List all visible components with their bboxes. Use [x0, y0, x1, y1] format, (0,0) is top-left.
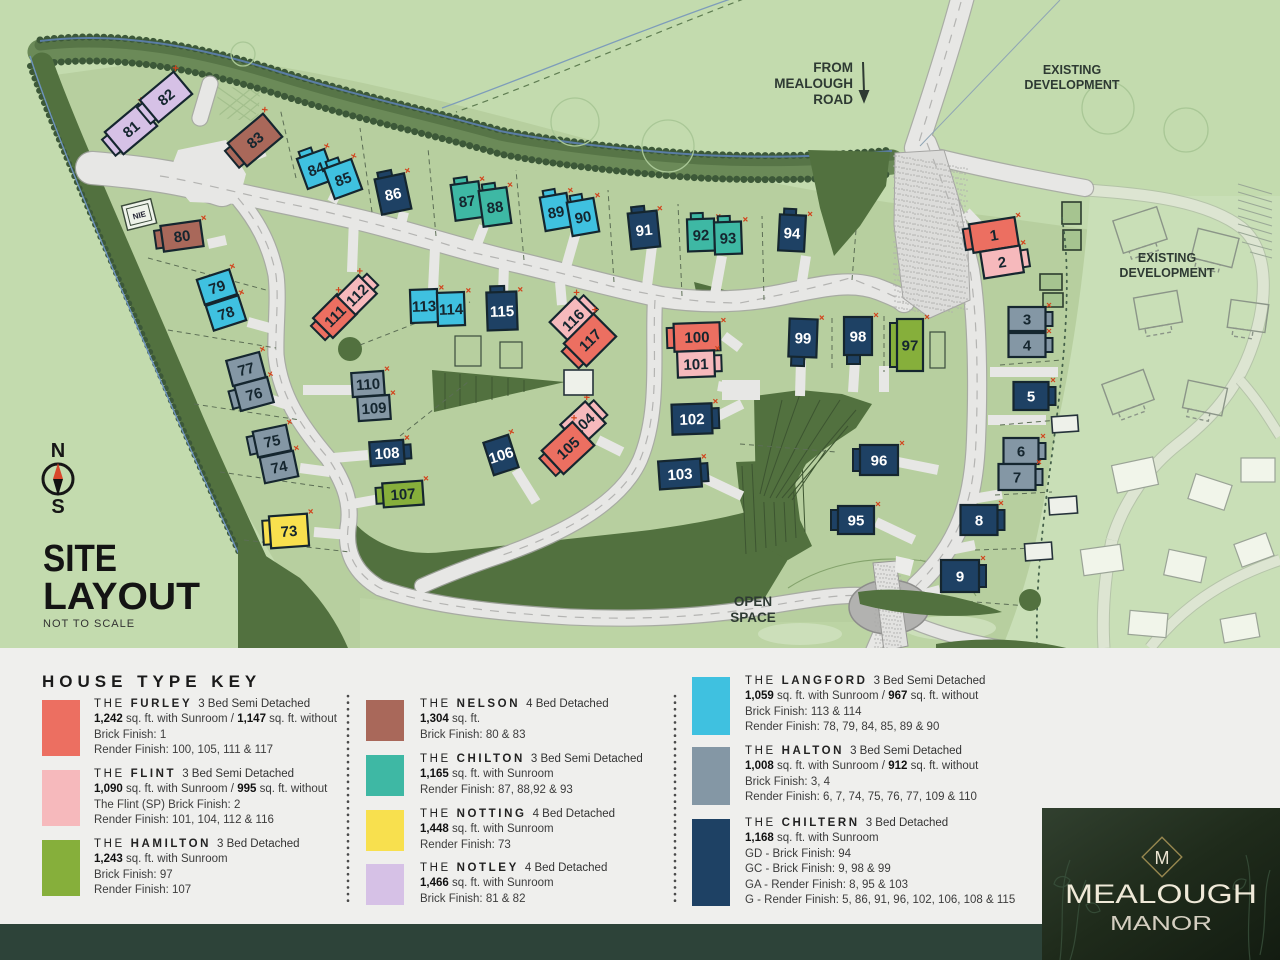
svg-text:The Flint (SP) Brick Finish: 2: The Flint (SP) Brick Finish: 2: [94, 799, 240, 811]
svg-text:FROM: FROM: [813, 60, 853, 75]
svg-text:DEVELOPMENT: DEVELOPMENT: [1119, 266, 1215, 280]
svg-text:G - Render Finish: 5, 86, 91,: G - Render Finish: 5, 86, 91, 96, 102, 1…: [745, 894, 1015, 906]
svg-text:MEALOUGH: MEALOUGH: [1065, 879, 1257, 909]
svg-text:98: 98: [850, 328, 867, 345]
svg-text:THE HAMILTON3 Bed Detached: THE HAMILTON3 Bed Detached: [94, 838, 300, 850]
svg-text:95: 95: [848, 512, 865, 529]
svg-text:94: 94: [783, 225, 801, 243]
svg-text:THE FLINT3 Bed Semi Detached: THE FLINT3 Bed Semi Detached: [94, 768, 294, 780]
svg-text:S: S: [51, 496, 64, 518]
svg-text:89: 89: [546, 203, 565, 223]
svg-text:3: 3: [1023, 311, 1031, 328]
svg-text:86: 86: [383, 185, 403, 205]
svg-text:100: 100: [684, 329, 710, 347]
svg-text:N: N: [51, 440, 65, 462]
svg-text:1,304 sq. ft.: 1,304 sq. ft.: [420, 713, 480, 725]
svg-text:SPACE: SPACE: [730, 610, 776, 625]
svg-text:MANOR: MANOR: [1110, 913, 1212, 935]
svg-text:THE NELSON4 Bed Detached: THE NELSON4 Bed Detached: [420, 698, 609, 710]
svg-text:1,008 sq. ft. with Sunroom / 9: 1,008 sq. ft. with Sunroom / 912 sq. ft.…: [745, 760, 979, 772]
svg-text:102: 102: [679, 411, 705, 429]
svg-text:109: 109: [361, 400, 387, 419]
svg-text:THE FURLEY3 Bed Semi Detached: THE FURLEY3 Bed Semi Detached: [94, 698, 310, 710]
svg-text:EXISTING: EXISTING: [1138, 251, 1196, 265]
svg-text:Render Finish: 101, 104, 112 &: Render Finish: 101, 104, 112 & 116: [94, 814, 274, 826]
svg-text:Brick Finish: 1: Brick Finish: 1: [94, 729, 166, 741]
svg-text:113: 113: [412, 298, 437, 316]
svg-text:SITE: SITE: [43, 538, 117, 580]
svg-text:1,165 sq. ft. with Sunroom: 1,165 sq. ft. with Sunroom: [420, 768, 554, 780]
svg-text:OPEN: OPEN: [734, 594, 772, 609]
svg-text:THE HALTON3 Bed Semi Detached: THE HALTON3 Bed Semi Detached: [745, 745, 962, 757]
svg-text:107: 107: [390, 486, 416, 505]
svg-text:Brick Finish: 113 & 114: Brick Finish: 113 & 114: [745, 706, 862, 718]
svg-text:5: 5: [1027, 388, 1035, 405]
svg-text:80: 80: [173, 227, 192, 246]
svg-text:1,466 sq. ft. with Sunroom: 1,466 sq. ft. with Sunroom: [420, 877, 554, 889]
svg-text:88: 88: [486, 198, 505, 217]
svg-text:103: 103: [667, 466, 693, 485]
svg-text:Brick Finish: 3, 4: Brick Finish: 3, 4: [745, 776, 831, 788]
svg-text:115: 115: [490, 303, 515, 321]
svg-text:97: 97: [902, 337, 919, 354]
svg-text:6: 6: [1017, 443, 1025, 460]
svg-text:THE CHILTERN3 Bed Detached: THE CHILTERN3 Bed Detached: [745, 817, 948, 829]
svg-text:Render Finish: 6, 7, 74, 75, 7: Render Finish: 6, 7, 74, 75, 76, 77, 109…: [745, 791, 977, 803]
svg-text:1,059 sq. ft. with Sunroom / 9: 1,059 sq. ft. with Sunroom / 967 sq. ft.…: [745, 690, 979, 702]
svg-text:1,243 sq. ft. with Sunroom: 1,243 sq. ft. with Sunroom: [94, 853, 228, 865]
svg-text:110: 110: [355, 376, 380, 395]
svg-text:EXISTING: EXISTING: [1043, 63, 1101, 77]
svg-text:GC - Brick Finish: 9, 98 & 99: GC - Brick Finish: 9, 98 & 99: [745, 863, 891, 875]
svg-text:M: M: [1155, 848, 1170, 868]
svg-text:4: 4: [1023, 337, 1032, 354]
svg-text:7: 7: [1013, 469, 1021, 486]
svg-text:1,242 sq. ft. with Sunroom / 1: 1,242 sq. ft. with Sunroom / 1,147 sq. f…: [94, 713, 338, 725]
svg-text:99: 99: [794, 330, 811, 348]
svg-text:Render Finish: 87, 88,92 & 93: Render Finish: 87, 88,92 & 93: [420, 784, 573, 796]
svg-text:LAYOUT: LAYOUT: [43, 576, 200, 618]
svg-text:Brick Finish: 97: Brick Finish: 97: [94, 869, 173, 881]
svg-text:92: 92: [692, 227, 709, 245]
svg-text:101: 101: [683, 356, 709, 374]
svg-text:THE LANGFORD3 Bed Semi Detache: THE LANGFORD3 Bed Semi Detached: [745, 675, 985, 687]
svg-text:GD - Brick Finish: 94: GD - Brick Finish: 94: [745, 848, 852, 860]
svg-text:1,168 sq. ft. with Sunroom: 1,168 sq. ft. with Sunroom: [745, 832, 879, 844]
svg-text:GA - Render Finish: 8, 95 & 10: GA - Render Finish: 8, 95 & 103: [745, 879, 908, 891]
svg-text:Brick Finish: 80 & 83: Brick Finish: 80 & 83: [420, 729, 525, 741]
svg-text:Render Finish: 107: Render Finish: 107: [94, 884, 191, 896]
svg-text:73: 73: [280, 523, 298, 541]
svg-text:96: 96: [871, 452, 888, 469]
svg-text:75: 75: [262, 432, 282, 452]
svg-text:NOT TO SCALE: NOT TO SCALE: [43, 618, 135, 630]
svg-text:87: 87: [458, 192, 477, 211]
svg-text:THE CHILTON3 Bed Semi Detached: THE CHILTON3 Bed Semi Detached: [420, 753, 643, 765]
svg-text:Brick Finish: 81 & 82: Brick Finish: 81 & 82: [420, 893, 525, 905]
svg-text:9: 9: [956, 568, 964, 585]
svg-text:Render Finish: 100, 105, 111 &: Render Finish: 100, 105, 111 & 117: [94, 744, 273, 756]
svg-text:THE NOTTING4 Bed Detached: THE NOTTING4 Bed Detached: [420, 808, 615, 820]
svg-text:HOUSE TYPE KEY: HOUSE TYPE KEY: [42, 672, 261, 691]
svg-text:108: 108: [374, 445, 400, 464]
svg-text:93: 93: [719, 230, 736, 248]
svg-text:ROAD: ROAD: [813, 92, 853, 107]
svg-text:90: 90: [573, 208, 592, 228]
svg-text:MEALOUGH: MEALOUGH: [774, 76, 853, 91]
svg-text:1,448 sq. ft. with Sunroom: 1,448 sq. ft. with Sunroom: [420, 823, 554, 835]
svg-text:Render Finish: 73: Render Finish: 73: [420, 839, 511, 851]
svg-text:THE NOTLEY4 Bed Detached: THE NOTLEY4 Bed Detached: [420, 862, 607, 874]
svg-text:114: 114: [439, 301, 464, 319]
svg-text:91: 91: [635, 222, 653, 241]
svg-text:1,090 sq. ft. with Sunroom / 9: 1,090 sq. ft. with Sunroom / 995 sq. ft.…: [94, 783, 328, 795]
svg-text:8: 8: [975, 512, 983, 529]
svg-text:Render Finish: 78, 79, 84, 85,: Render Finish: 78, 79, 84, 85, 89 & 90: [745, 721, 939, 733]
svg-text:DEVELOPMENT: DEVELOPMENT: [1024, 78, 1120, 92]
